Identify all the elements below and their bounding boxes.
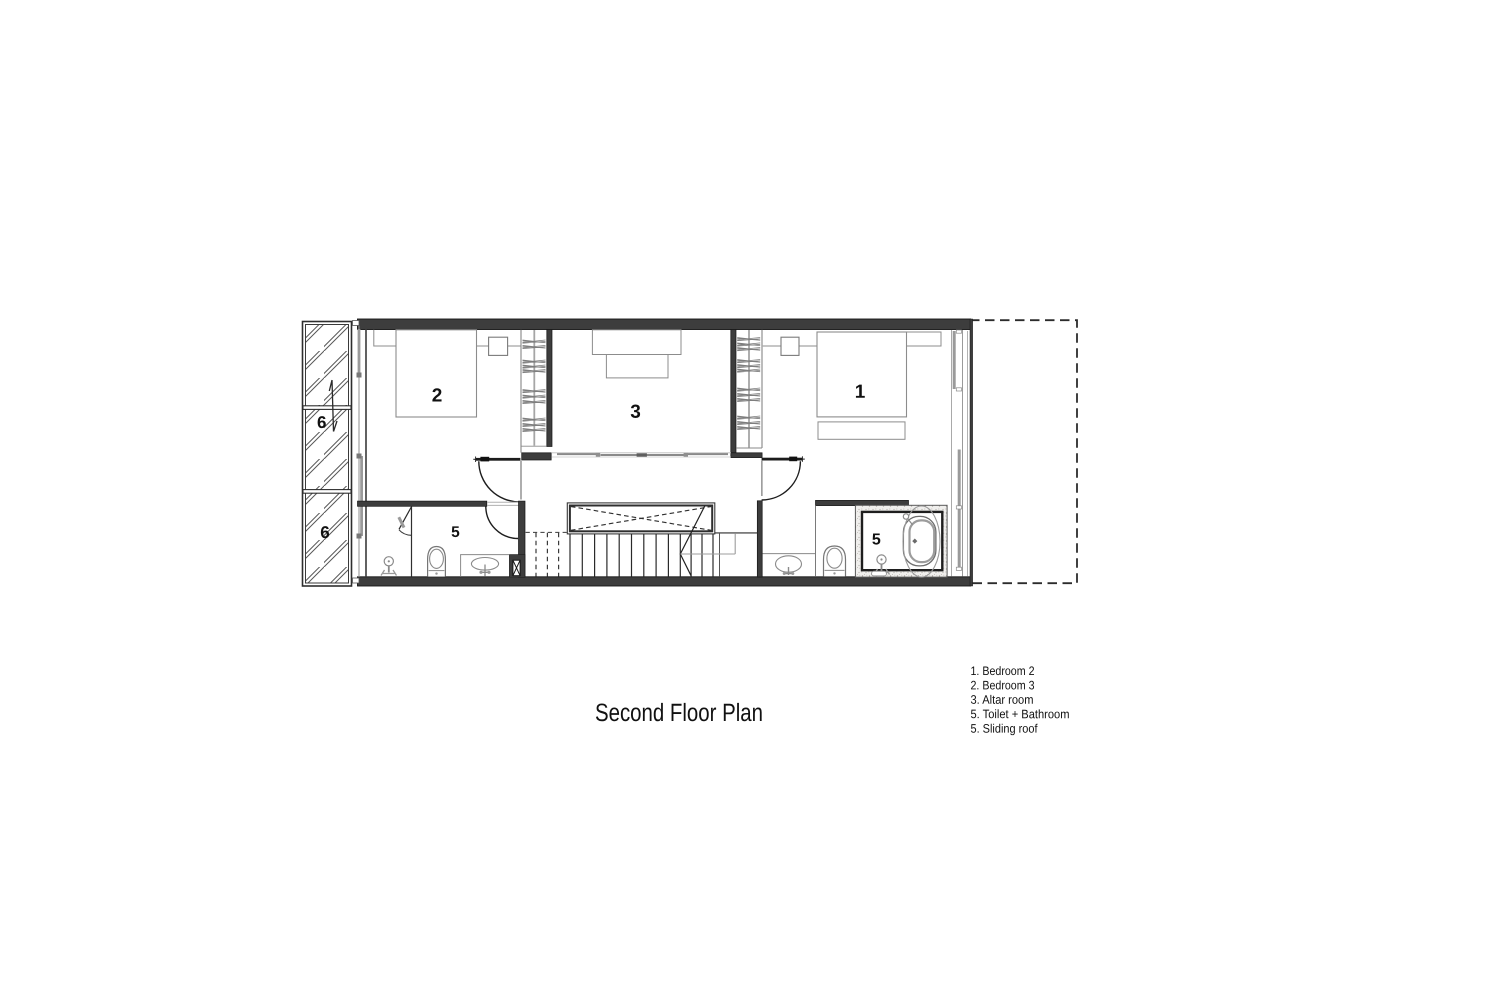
svg-text:3. Altar room: 3. Altar room — [970, 693, 1033, 707]
svg-text:1: 1 — [855, 382, 866, 403]
svg-text:Second Floor Plan: Second Floor Plan — [595, 699, 763, 727]
svg-text:5: 5 — [451, 524, 460, 541]
svg-text:6: 6 — [317, 413, 326, 432]
svg-text:2: 2 — [432, 385, 443, 406]
svg-text:5. Toilet + Bathroom: 5. Toilet + Bathroom — [970, 707, 1069, 721]
svg-text:5. Sliding roof: 5. Sliding roof — [970, 722, 1038, 736]
svg-text:3: 3 — [630, 402, 641, 423]
svg-text:1. Bedroom 2: 1. Bedroom 2 — [970, 664, 1034, 678]
svg-text:2. Bedroom 3: 2. Bedroom 3 — [970, 678, 1034, 692]
svg-text:6: 6 — [320, 523, 329, 542]
svg-text:5: 5 — [872, 531, 881, 548]
